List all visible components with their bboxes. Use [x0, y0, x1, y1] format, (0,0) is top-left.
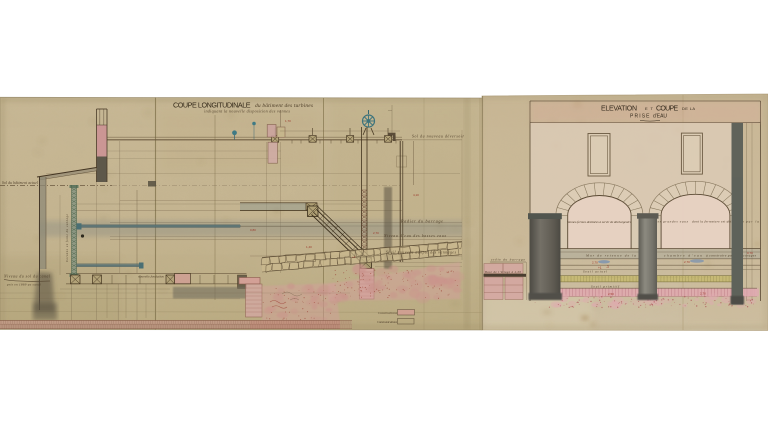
svg-text:DE LA: DE LA — [682, 106, 695, 111]
svg-text:COUPE: COUPE — [656, 106, 679, 113]
svg-text:2,50: 2,50 — [608, 292, 614, 296]
svg-text:d’EAU: d’EAU — [653, 114, 667, 120]
svg-text:PRISE: PRISE — [630, 114, 650, 120]
svg-text:Niveau d’eau des basses eaux: Niveau d’eau des basses eaux — [383, 234, 446, 238]
svg-text:2,70: 2,70 — [684, 260, 690, 264]
svg-text:Sol du nouveau déversoir: Sol du nouveau déversoir — [412, 135, 465, 139]
svg-text:Constructions: Constructions — [378, 311, 398, 315]
svg-text:+1: +1 — [598, 266, 602, 270]
svg-text:1,70: 1,70 — [285, 119, 291, 123]
svg-text:0,70: 0,70 — [747, 251, 753, 255]
svg-text:Radier du barrage: Radier du barrage — [400, 219, 443, 224]
svg-text:Niveau du sol du canal: Niveau du sol du canal — [3, 275, 50, 279]
svg-text:Communications: Communications — [377, 320, 398, 324]
svg-text:4,10: 4,10 — [413, 193, 419, 197]
svg-text:Colonne en fonte du vannage: Colonne en fonte du vannage — [65, 213, 69, 262]
svg-text:indiquant la nouvelle disposit: indiquant la nouvelle disposition des va… — [204, 109, 290, 114]
svg-text:2,70: 2,70 — [373, 231, 379, 235]
svg-text:Mur de retenue de la: Mur de retenue de la — [585, 254, 636, 258]
svg-text:Seuil primitif: Seuil primitif — [591, 284, 620, 288]
svg-text:Seuil actuel: Seuil actuel — [583, 270, 607, 274]
svg-text:chambre d’eau: chambre d’eau — [664, 254, 702, 258]
svg-text:1,40: 1,40 — [306, 245, 312, 249]
svg-text:-3: -3 — [606, 265, 609, 269]
svg-text:Vannes-fermes destinées à serv: Vannes-fermes destinées à servir de déch… — [567, 220, 632, 224]
svg-text:ELEVATION: ELEVATION — [601, 106, 638, 113]
svg-text:pris en 1869 au canal: pris en 1869 au canal — [6, 283, 41, 287]
svg-text:2,70: 2,70 — [592, 261, 598, 265]
svg-text:2,70: 2,70 — [700, 292, 706, 296]
svg-text:crête du barrage: crête du barrage — [491, 258, 525, 262]
svg-text:+2: +2 — [352, 255, 356, 259]
svg-text:nouvelle fondation: nouvelle fondation — [138, 275, 164, 279]
svg-text:Sol du bâtiment actuel: Sol du bâtiment actuel — [2, 181, 38, 185]
svg-text:Seuil nouveau adopté des vanna: Seuil nouveau adopté des vannages — [386, 251, 457, 255]
svg-text:0,80: 0,80 — [250, 228, 256, 232]
